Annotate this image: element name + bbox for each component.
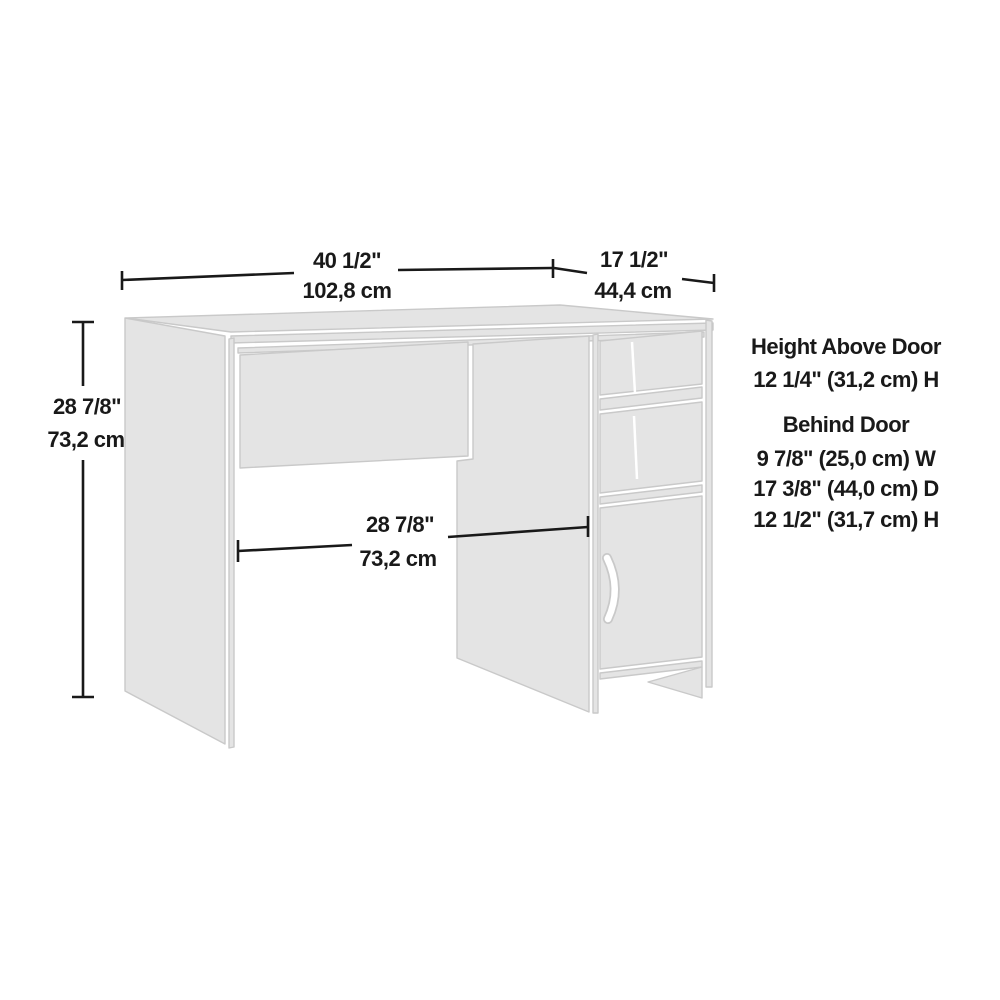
above-door-value: 12 1/4" (31,2 cm) H (753, 367, 939, 392)
right-side-panel (706, 320, 712, 687)
diagram-canvas: 40 1/2" 102,8 cm 17 1/2" 44,4 cm 28 7/8"… (0, 0, 1000, 1000)
back-apron-panel (240, 342, 468, 468)
cabinet-side-panel (457, 336, 589, 712)
height-inches-label: 28 7/8" (53, 394, 121, 419)
depth-dim-line-a (554, 268, 587, 273)
width-dim-line-a (122, 273, 294, 280)
width-inches-label: 40 1/2" (313, 248, 381, 273)
behind-door-height: 12 1/2" (31,7 cm) H (753, 507, 939, 532)
behind-door-width: 9 7/8" (25,0 cm) W (757, 446, 936, 471)
behind-door-title: Behind Door (783, 412, 910, 437)
width-dim-line-b (398, 268, 552, 270)
kneespace-inches-label: 28 7/8" (366, 512, 434, 537)
kneespace-metric-label: 73,2 cm (359, 546, 436, 571)
desk-dimension-diagram: 40 1/2" 102,8 cm 17 1/2" 44,4 cm 28 7/8"… (0, 0, 1000, 1000)
annotation-notes: Height Above Door 12 1/4" (31,2 cm) H Be… (751, 334, 942, 532)
depth-inches-label: 17 1/2" (600, 247, 668, 272)
left-side-panel (125, 318, 225, 744)
above-door-title: Height Above Door (751, 334, 942, 359)
depth-metric-label: 44,4 cm (594, 278, 671, 303)
cubby-top-interior (600, 331, 702, 395)
behind-door-depth: 17 3/8" (44,0 cm) D (753, 476, 939, 501)
cubby-middle-interior (600, 402, 702, 493)
depth-dim-line-b (682, 279, 714, 283)
left-side-front-edge (229, 338, 234, 748)
cabinet-front-left-edge (593, 334, 598, 713)
width-metric-label: 102,8 cm (303, 278, 392, 303)
kneespace-dim-line-a (238, 545, 352, 551)
height-metric-label: 73,2 cm (47, 427, 124, 452)
